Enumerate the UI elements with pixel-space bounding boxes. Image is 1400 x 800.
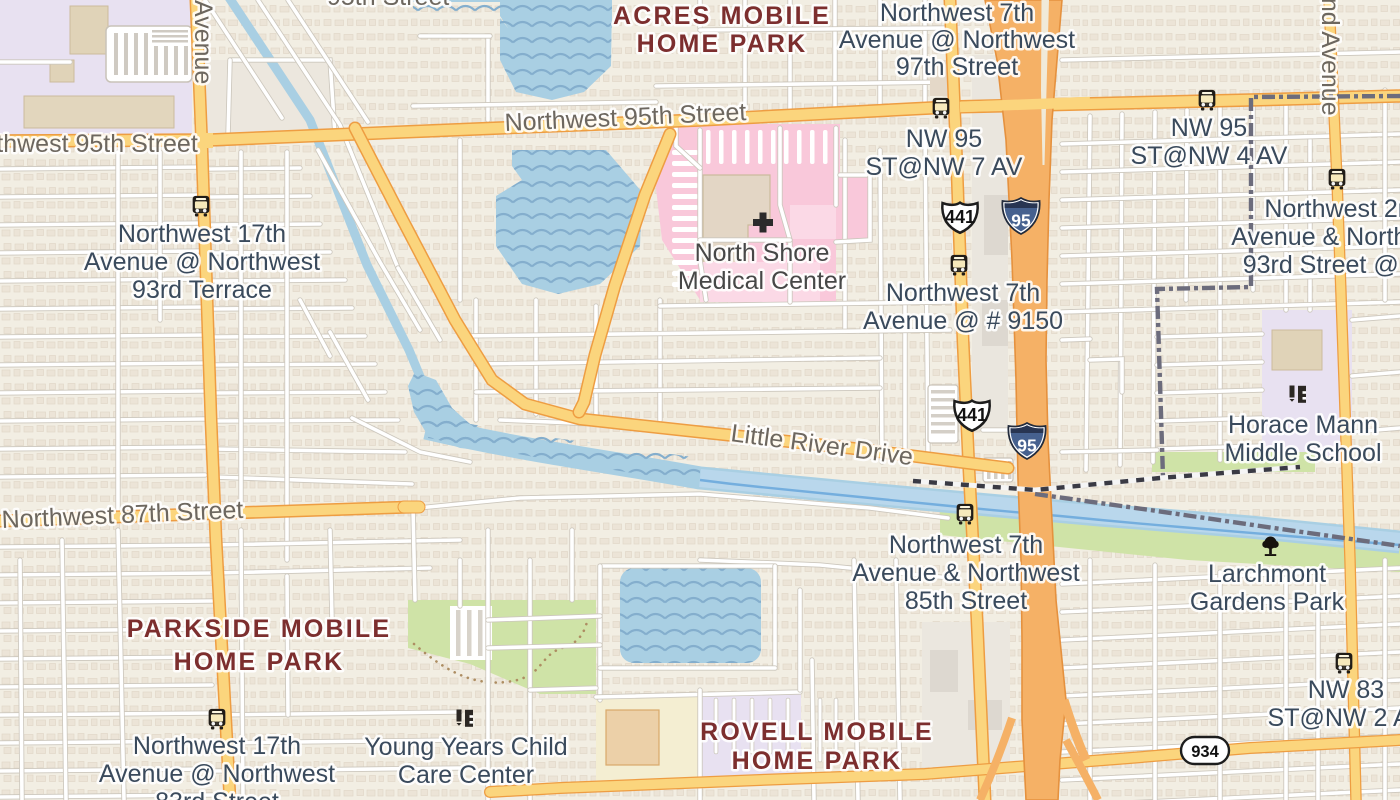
svg-text:HOME PARK: HOME PARK xyxy=(174,648,345,676)
svg-text:Northwest 95th Street: Northwest 95th Street xyxy=(0,130,198,158)
svg-text:95: 95 xyxy=(1017,436,1037,456)
svg-text:93rd Street @ NW: 93rd Street @ NW xyxy=(1243,251,1400,279)
svg-text:Northwest 7th: Northwest 7th xyxy=(886,279,1040,307)
svg-text:Middle School: Middle School xyxy=(1224,439,1381,467)
svg-text:Northwest 7th: Northwest 7th xyxy=(889,531,1043,559)
svg-text:Horace Mann: Horace Mann xyxy=(1228,411,1378,439)
svg-text:Avenue @ Northwest: Avenue @ Northwest xyxy=(99,760,335,788)
svg-text:HOME PARK: HOME PARK xyxy=(732,747,903,775)
svg-text:93rd Terrace: 93rd Terrace xyxy=(132,276,272,304)
svg-text:83rd Street: 83rd Street xyxy=(155,788,279,800)
svg-text:NW 95: NW 95 xyxy=(1171,114,1247,142)
svg-text:Avenue: Avenue xyxy=(189,0,217,84)
svg-text:Avenue & Northwest: Avenue & Northwest xyxy=(852,559,1079,587)
svg-text:Avenue @ # 9150: Avenue @ # 9150 xyxy=(863,307,1063,335)
svg-text:North Shore: North Shore xyxy=(695,239,830,267)
svg-text:Avenue @ Northwest: Avenue @ Northwest xyxy=(839,26,1075,54)
svg-text:Young Years Child: Young Years Child xyxy=(364,733,567,761)
svg-text:Gardens Park: Gardens Park xyxy=(1190,588,1345,616)
svg-text:ST@NW 7 AV: ST@NW 7 AV xyxy=(866,153,1023,181)
svg-text:NW 83: NW 83 xyxy=(1308,676,1384,704)
svg-text:Northwest 2nd: Northwest 2nd xyxy=(1264,195,1400,223)
svg-text:95th Street: 95th Street xyxy=(327,0,449,11)
svg-text:Northwest 17th: Northwest 17th xyxy=(118,220,286,248)
svg-text:Avenue @ Northwest: Avenue @ Northwest xyxy=(84,248,320,276)
svg-text:HOME PARK: HOME PARK xyxy=(637,30,808,58)
svg-text:97th Street: 97th Street xyxy=(896,53,1018,81)
svg-text:441: 441 xyxy=(945,207,975,227)
svg-text:ACRES MOBILE: ACRES MOBILE xyxy=(613,2,831,30)
svg-text:85th Street: 85th Street xyxy=(905,587,1027,615)
svg-text:PARKSIDE MOBILE: PARKSIDE MOBILE xyxy=(127,615,392,643)
svg-text:934: 934 xyxy=(1191,743,1219,761)
svg-text:ROVELL MOBILE: ROVELL MOBILE xyxy=(700,718,934,746)
svg-text:Medical Center: Medical Center xyxy=(678,267,846,295)
svg-text:2nd Avenue: 2nd Avenue xyxy=(1316,0,1344,116)
svg-text:ST@NW 4 AV: ST@NW 4 AV xyxy=(1131,142,1288,170)
svg-text:441: 441 xyxy=(957,405,987,425)
svg-text:Northwest 17th: Northwest 17th xyxy=(133,732,301,760)
svg-text:Care Center: Care Center xyxy=(398,761,534,789)
svg-text:Larchmont: Larchmont xyxy=(1208,560,1326,588)
svg-text:Northwest 7th: Northwest 7th xyxy=(880,0,1034,27)
svg-text:ST@NW 2 AV: ST@NW 2 AV xyxy=(1268,704,1400,732)
svg-text:NW 95: NW 95 xyxy=(906,125,982,153)
svg-text:95: 95 xyxy=(1011,211,1031,231)
svg-text:Avenue & Northwest: Avenue & Northwest xyxy=(1231,223,1400,251)
